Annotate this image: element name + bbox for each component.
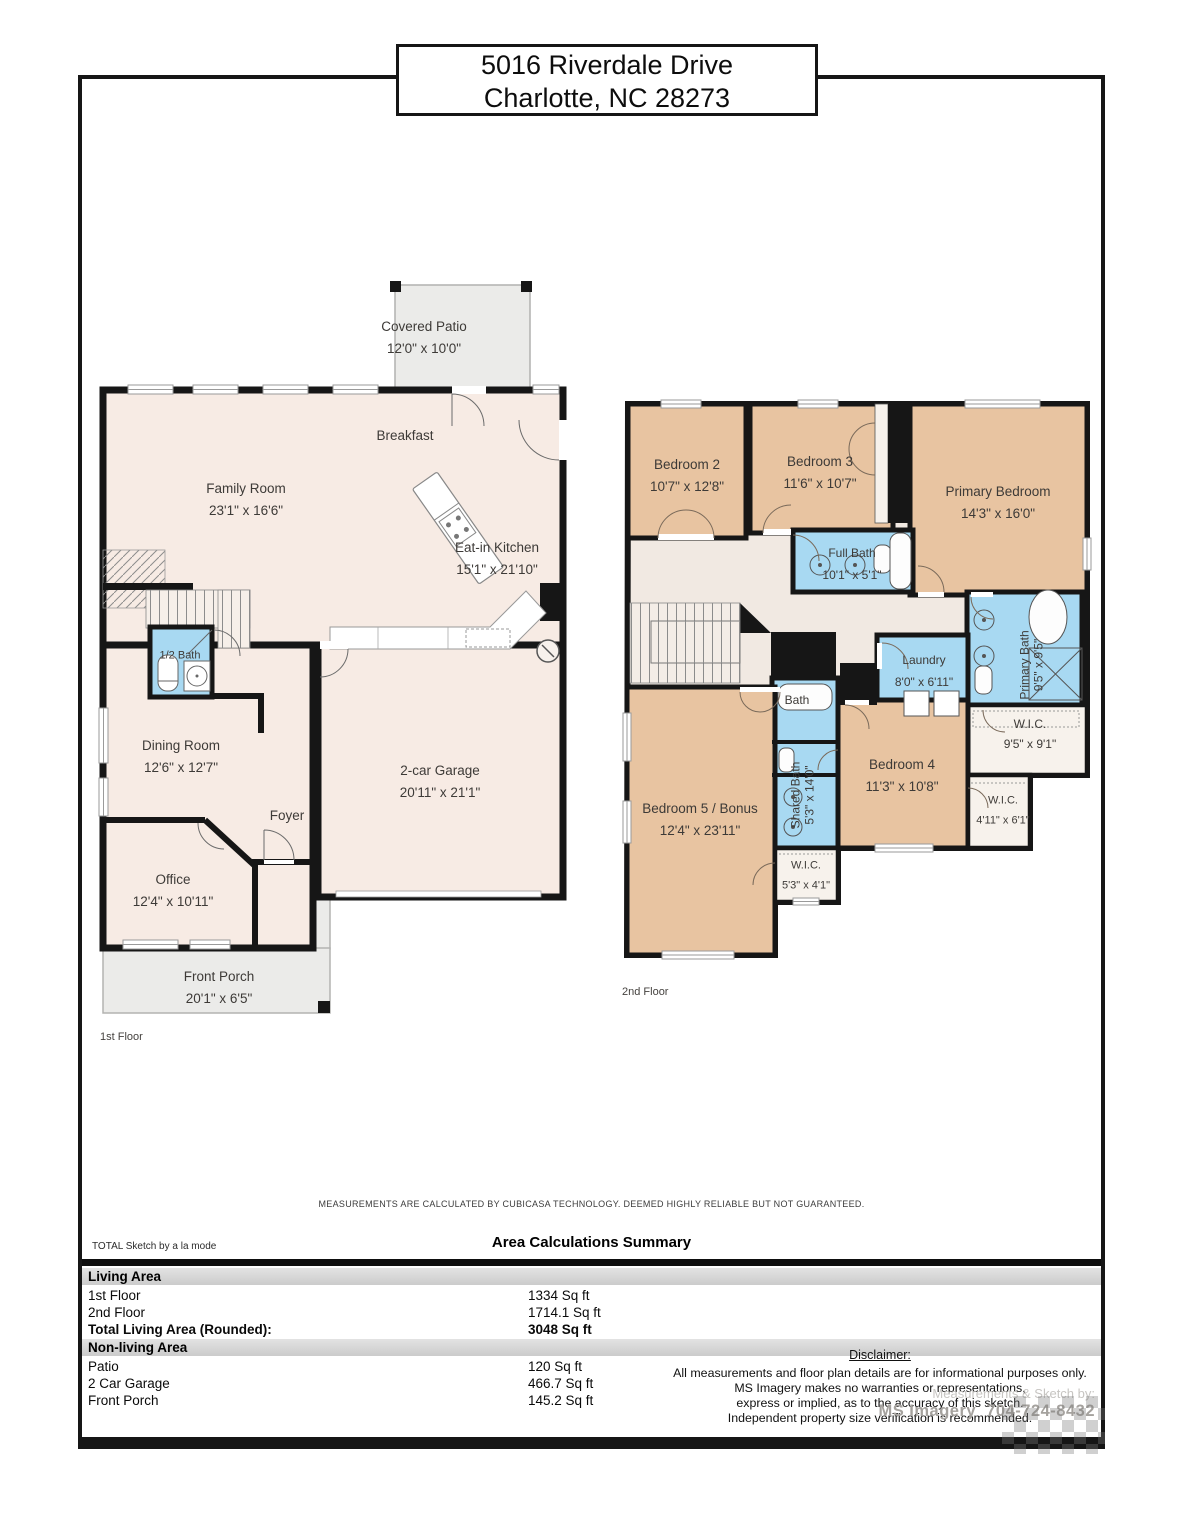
frame-bottom-bar: [78, 1437, 1105, 1449]
room-dims-bedroom4: 11'3" x 10'8": [865, 779, 938, 795]
address-line1: 5016 Riverdale Drive: [399, 49, 815, 82]
room-label-family: Family Room: [206, 481, 286, 497]
room-dims-laundry: 8'0" x 6'11": [895, 675, 953, 689]
room-dims-family: 23'1" x 16'6": [209, 503, 283, 519]
room-label-bedroom4: Bedroom 4: [869, 757, 935, 773]
summary-divider: [82, 1259, 1101, 1266]
room-label-foyer: Foyer: [270, 808, 305, 824]
room-dims-wic5: 5'3" x 4'1": [782, 879, 830, 892]
caption-2nd-floor: 2nd Floor: [622, 986, 668, 998]
room-label-primary: Primary Bedroom: [945, 484, 1050, 500]
disclaimer-line-1: All measurements and floor plan details …: [655, 1366, 1105, 1381]
garage-door: [336, 891, 541, 897]
row-1st-floor-value: 1334 Sq ft: [528, 1288, 590, 1303]
room-label-wic5: W.I.C.: [791, 859, 821, 872]
address-title-box: 5016 Riverdale Drive Charlotte, NC 28273: [396, 44, 818, 116]
row-patio-value: 120 Sq ft: [528, 1359, 582, 1374]
room-label-half-bath: 1/2 Bath: [160, 649, 201, 662]
row-2nd-floor-label: 2nd Floor: [88, 1305, 145, 1320]
stairs-2nd: [630, 603, 740, 683]
room-label-front-porch: Front Porch: [184, 969, 255, 985]
room-label-dining: Dining Room: [142, 738, 220, 754]
room-label-bedroom3: Bedroom 3: [787, 454, 853, 470]
summary-title: Area Calculations Summary: [78, 1234, 1105, 1251]
room-label-bedroom5: Bedroom 5 / Bonus: [642, 801, 758, 817]
room-dims-dining: 12'6" x 12'7": [144, 760, 218, 776]
floor-plan-sheet: 5016 Riverdale Drive Charlotte, NC 28273: [0, 0, 1187, 1536]
room-dims-wic-primary: 9'5" x 9'1": [1004, 737, 1056, 751]
row-front-porch-label: Front Porch: [88, 1393, 159, 1408]
room-dims-bedroom5: 12'4" x 23'11": [660, 823, 741, 839]
frame-top-left: [78, 75, 398, 79]
room-label-kitchen: Eat-in Kitchen: [455, 540, 539, 556]
measurement-note: MEASUREMENTS ARE CALCULATED BY CUBICASA …: [78, 1199, 1105, 1209]
row-total-value: 3048 Sq ft: [528, 1322, 592, 1337]
room-label-wic4: W.I.C.: [988, 794, 1018, 807]
room-dims-full-bath: 10'1" x 5'1": [822, 568, 881, 582]
row-garage-value: 466.7 Sq ft: [528, 1376, 593, 1391]
room-label-shared-bath: Shared Bath 5'3" x 14'0": [789, 762, 818, 829]
watermark: [1002, 1396, 1105, 1454]
floorplan-1st-floor: [78, 278, 578, 1048]
room-label-laundry: Laundry: [902, 653, 945, 667]
frame-top-right: [816, 75, 1105, 79]
living-area-header: Living Area: [82, 1268, 1101, 1285]
room-dims-front-porch: 20'1" x 6'5": [186, 991, 253, 1007]
row-garage-label: 2 Car Garage: [88, 1376, 170, 1391]
room-label-breakfast: Breakfast: [376, 428, 433, 444]
room-label-garage: 2-car Garage: [400, 763, 480, 779]
row-total-label: Total Living Area (Rounded):: [88, 1322, 272, 1337]
disclaimer-heading: Disclaimer:: [655, 1348, 1105, 1362]
room-dims-bedroom2: 10'7" x 12'8": [650, 479, 724, 495]
room-label-bedroom2: Bedroom 2: [654, 457, 720, 473]
row-2nd-floor-value: 1714.1 Sq ft: [528, 1305, 601, 1320]
room-dims-patio: 12'0" x 10'0": [387, 341, 461, 357]
room-dims-primary: 14'3" x 16'0": [961, 506, 1035, 522]
row-1st-floor-label: 1st Floor: [88, 1288, 141, 1303]
row-front-porch-value: 145.2 Sq ft: [528, 1393, 593, 1408]
room-label-office: Office: [155, 872, 190, 888]
caption-1st-floor: 1st Floor: [100, 1031, 143, 1043]
room-dims-bedroom3: 11'6" x 10'7": [783, 476, 856, 492]
row-patio-label: Patio: [88, 1359, 119, 1374]
room-label-primary-bath: Primary Bath 9'5" x 9'5": [1018, 630, 1047, 699]
room-label-full-bath: Full Bath: [828, 546, 875, 560]
room-label-patio: Covered Patio: [381, 319, 467, 335]
room-dims-kitchen: 15'1" x 21'10": [456, 562, 538, 578]
room-label-bath: Bath: [785, 693, 810, 707]
address-line2: Charlotte, NC 28273: [399, 82, 815, 115]
room-label-wic-primary: W.I.C.: [1014, 717, 1047, 731]
room-dims-office: 12'4" x 10'11": [133, 894, 214, 910]
room-dims-garage: 20'11" x 21'1": [400, 785, 481, 801]
room-dims-wic4: 4'11" x 6'1": [976, 814, 1029, 827]
